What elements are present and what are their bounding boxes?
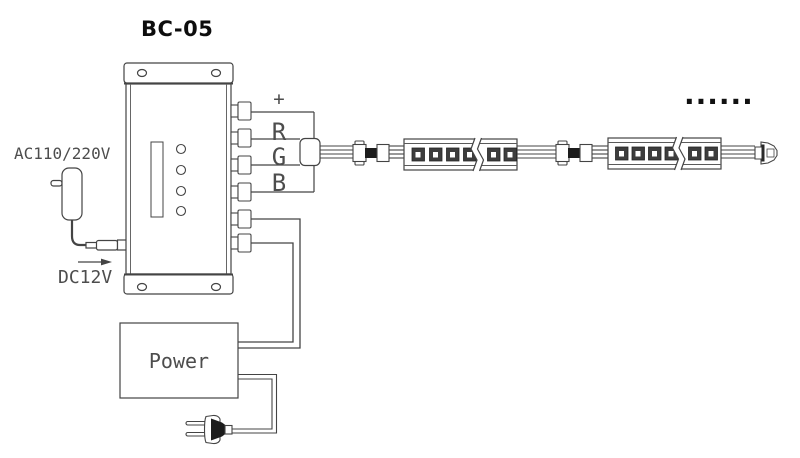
ac-plug-icon <box>186 415 232 443</box>
controller-body <box>126 84 231 274</box>
screw-hole-icon <box>138 70 147 77</box>
adapter-body <box>62 168 82 220</box>
dc-arrow-icon <box>78 259 112 266</box>
wiring-diagram <box>0 0 800 458</box>
wire-junction-box <box>300 139 320 166</box>
diagram-title: BC-05 <box>141 19 213 40</box>
dc-plug-icon <box>86 240 127 250</box>
terminal-lug <box>231 183 251 201</box>
terminal-label-plus: + <box>267 90 291 109</box>
led-strip-segment-1 <box>404 138 517 171</box>
power-supply-label: Power <box>120 351 238 371</box>
ribbon-wires <box>517 146 556 158</box>
diagram-canvas: BC-05 AC110/220V DC12V + R G B Power ...… <box>0 0 800 458</box>
ribbon-wires <box>389 146 405 158</box>
continuation-dots: ...... <box>684 81 754 109</box>
ac-cord <box>232 375 277 434</box>
power-adapter-icon <box>51 168 86 245</box>
adapter-prong <box>51 181 62 187</box>
rgb-connector-pair <box>353 141 389 165</box>
end-cap-connector <box>755 142 777 164</box>
terminal-lug <box>231 234 251 252</box>
terminal-lug <box>231 156 251 174</box>
terminal-label-g: G <box>267 145 291 169</box>
ribbon-wires <box>320 146 353 158</box>
terminal-block <box>231 102 251 252</box>
terminal-lug <box>231 129 251 147</box>
terminal-lug <box>231 102 251 120</box>
terminal-label-b: B <box>267 171 291 195</box>
screw-hole-icon <box>138 284 147 291</box>
ribbon-wires <box>592 146 608 158</box>
adapter-cable <box>72 220 86 245</box>
led-strip-segment-2 <box>608 137 721 170</box>
terminal-lug <box>231 210 251 228</box>
controller-box <box>124 63 233 294</box>
screw-hole-icon <box>212 284 221 291</box>
rgb-connector-pair <box>556 141 592 165</box>
ac-input-label: AC110/220V <box>14 146 110 162</box>
ribbon-wires <box>721 146 755 158</box>
dc-output-label: DC12V <box>58 269 112 287</box>
screw-hole-icon <box>212 70 221 77</box>
terminal-label-r: R <box>267 120 291 144</box>
